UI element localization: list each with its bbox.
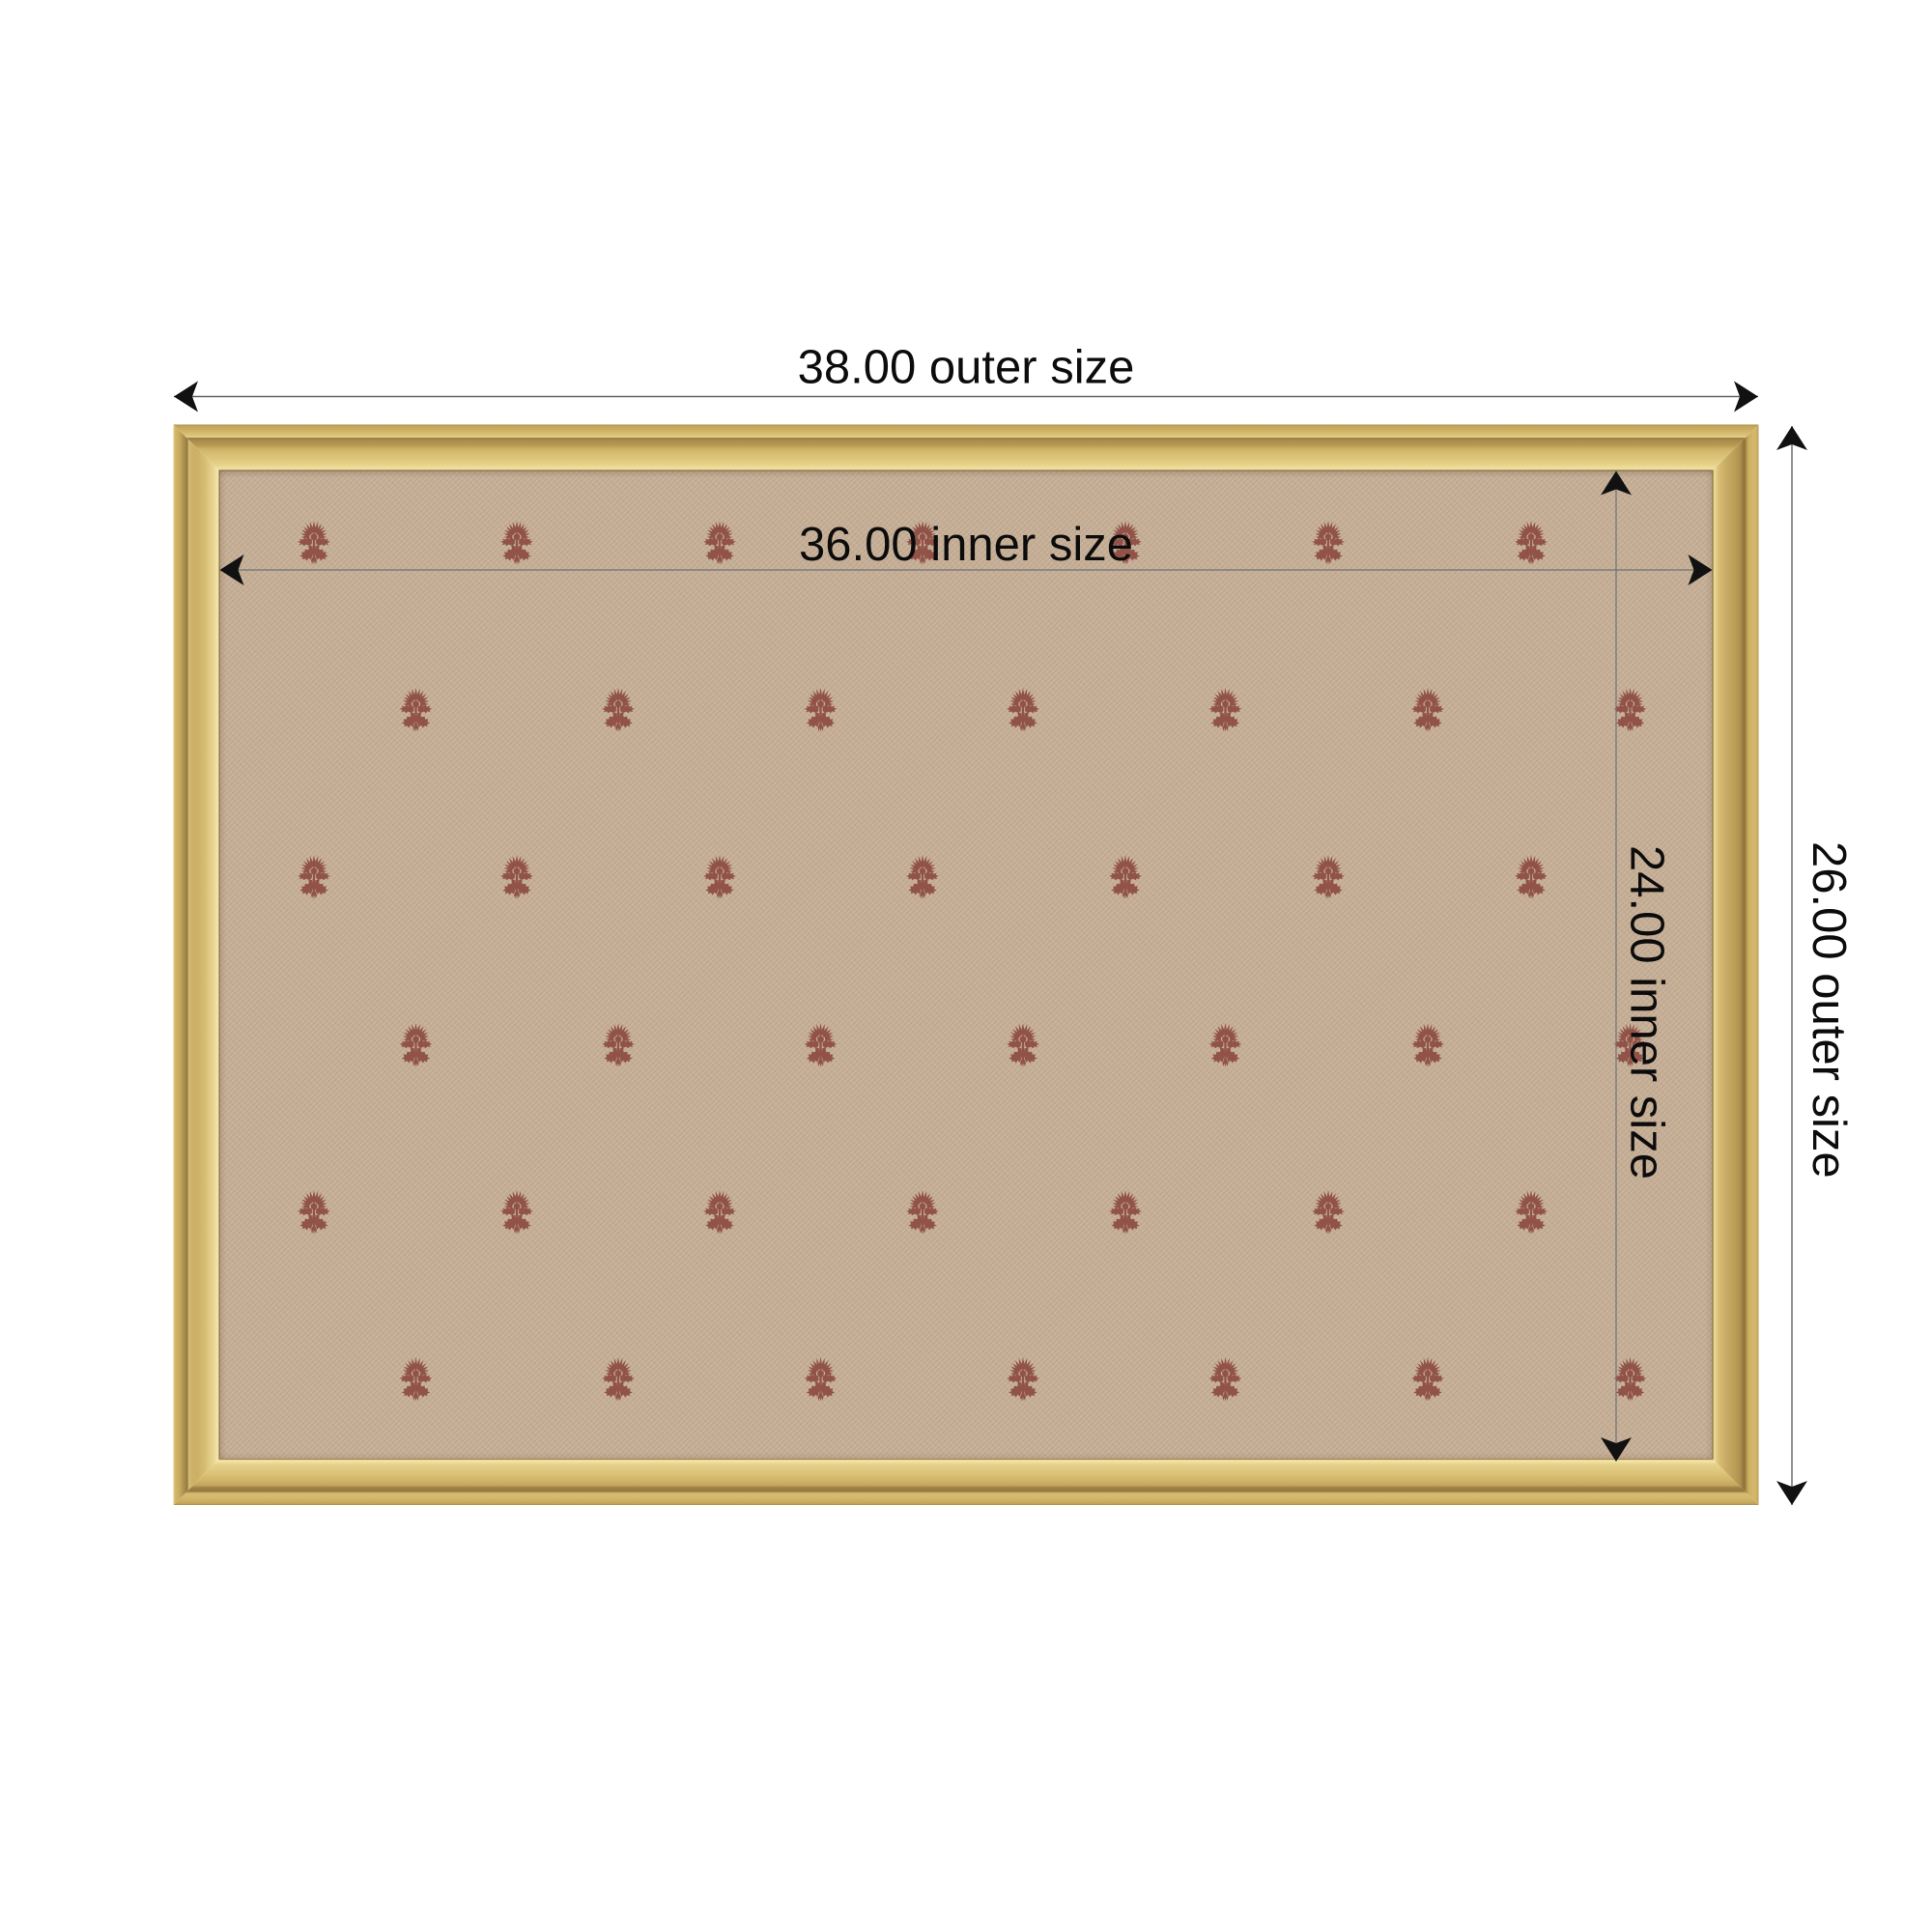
svg-text:38.00 outer size: 38.00 outer size <box>798 342 1135 394</box>
svg-text:24.00 inner size: 24.00 inner size <box>1621 845 1673 1179</box>
svg-text:26.00 outer size: 26.00 outer size <box>1803 841 1855 1179</box>
svg-text:36.00 inner size: 36.00 inner size <box>799 519 1133 571</box>
